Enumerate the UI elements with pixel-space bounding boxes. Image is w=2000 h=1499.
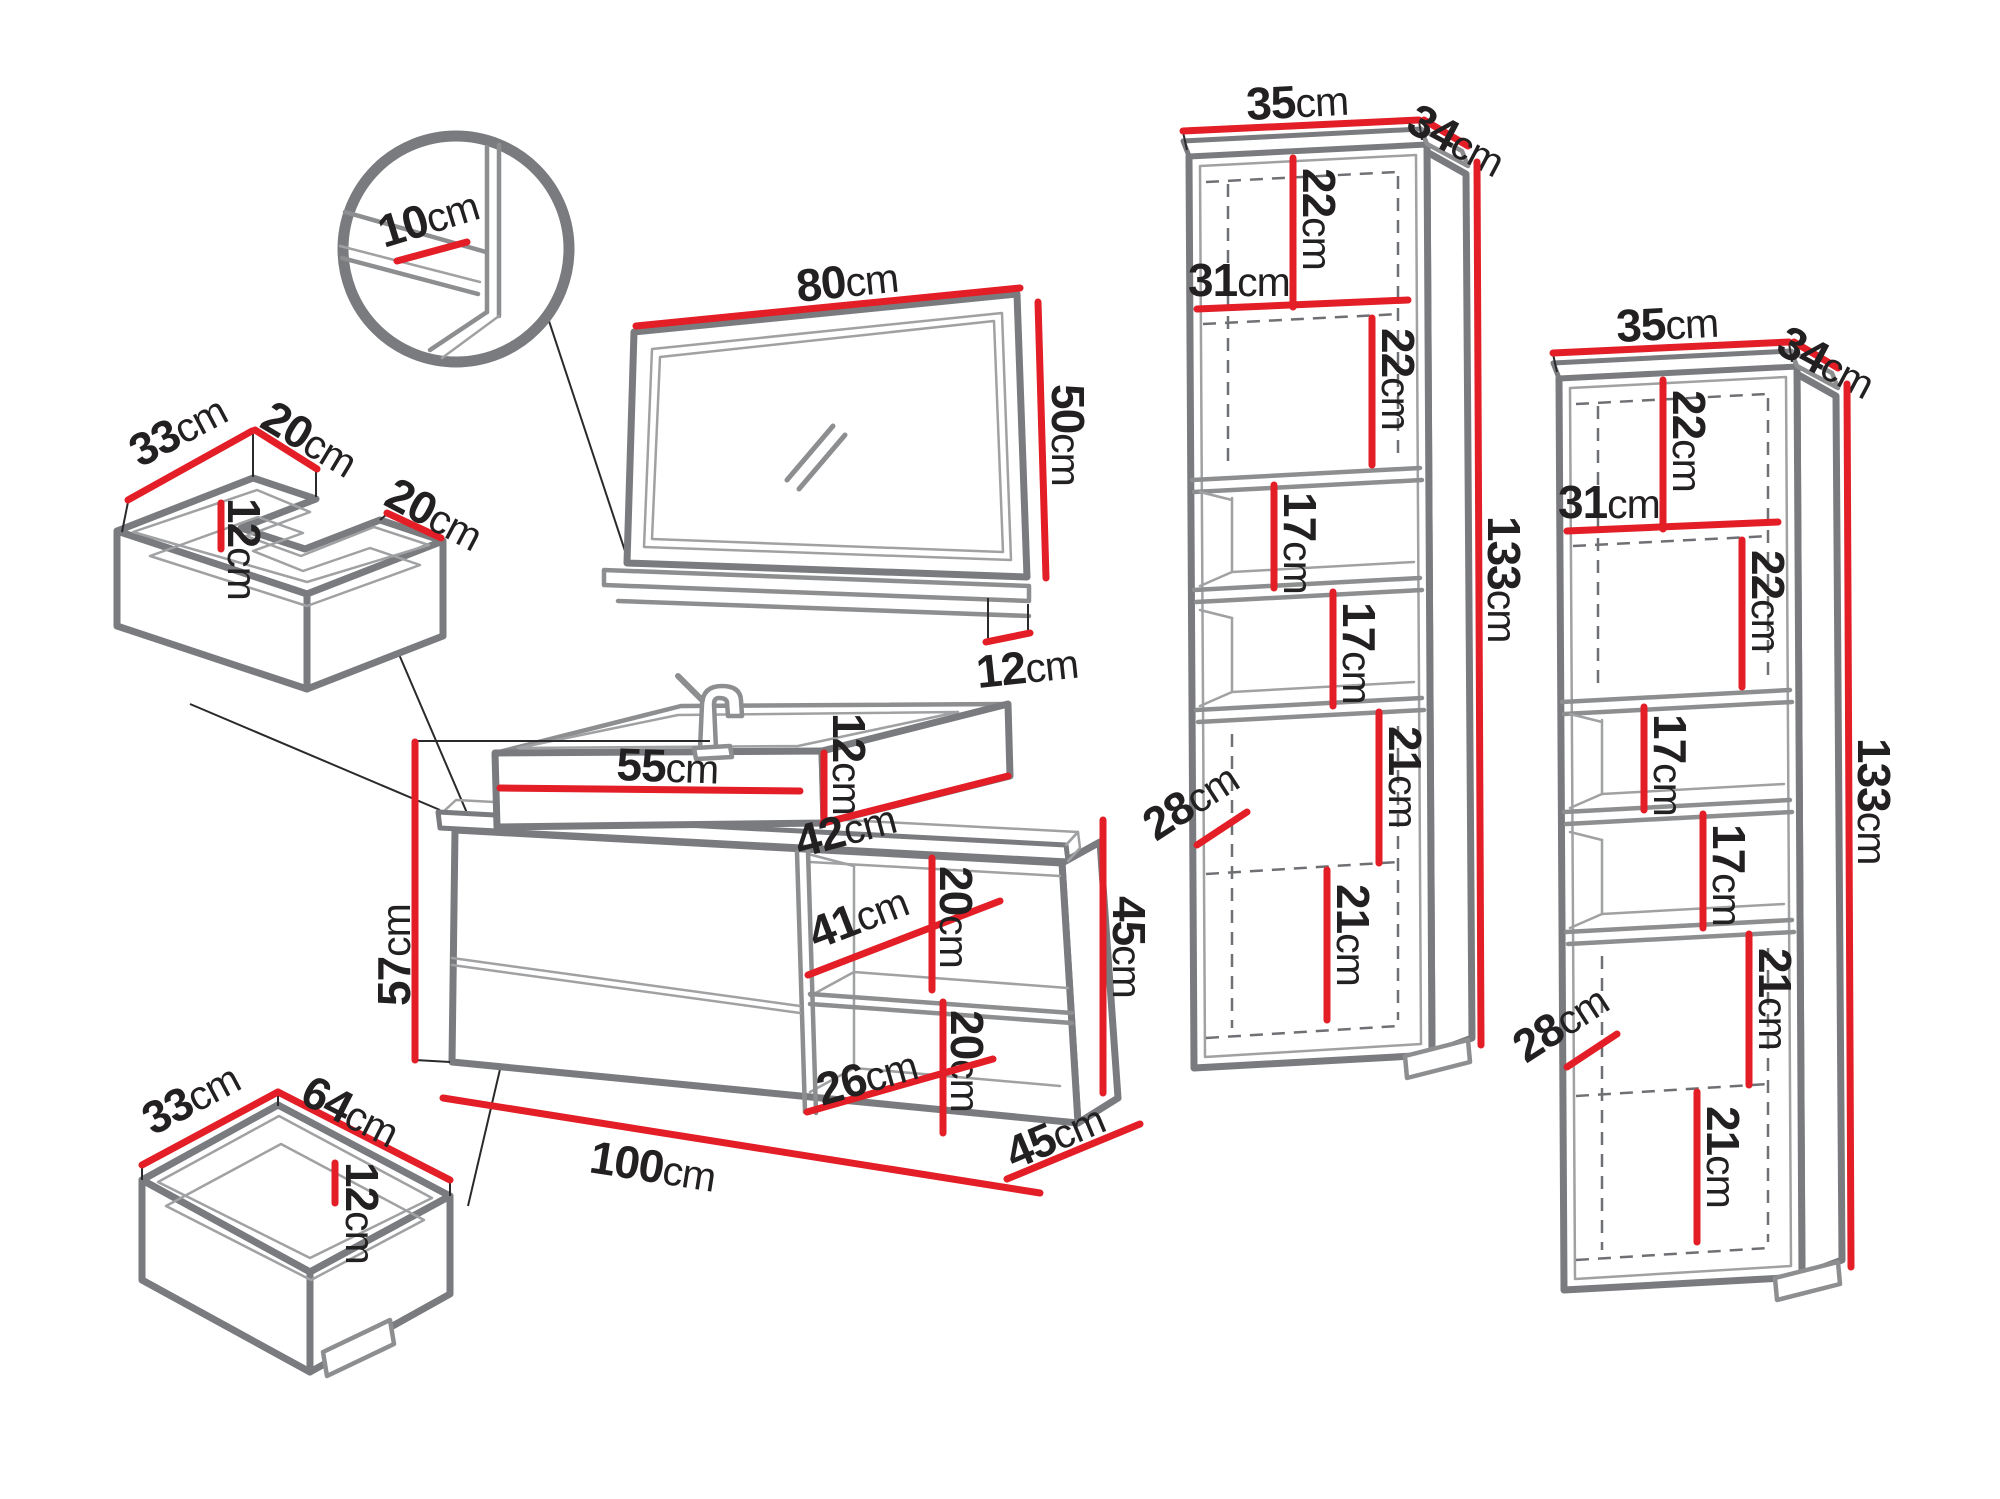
mirror-shelf-underside	[618, 601, 1029, 616]
diagram-canvas: 10cm 80cm 50cm 12cm 33cm 20cm 20cm	[0, 0, 2000, 1499]
dim-label-bottomdrawer-12: 12cm	[336, 1162, 388, 1264]
leader-bottomdrawer-to-vanity	[468, 1048, 505, 1206]
dim-label-cab1-22b: 22cm	[1372, 328, 1424, 430]
dim-label-topdrawer-33: 33cm	[120, 383, 234, 477]
dim-label-topdrawer-12: 12cm	[218, 498, 270, 600]
mirror: 80cm 50cm 12cm	[604, 250, 1094, 698]
dim-label-cab2-17b: 17cm	[1703, 824, 1755, 926]
dim-label-cab2-35: 35cm	[1615, 295, 1719, 352]
dim-label-cab1-31: 31cm	[1188, 254, 1290, 306]
dim-label-cab2-22a: 22cm	[1663, 390, 1715, 492]
detail-circle: 10cm	[340, 136, 569, 362]
faucet-lever	[678, 676, 702, 700]
dim-line-mirror-12	[986, 633, 1030, 642]
dim-label-cab1-133: 133cm	[1478, 516, 1530, 642]
dim-label-vanity-45h: 45cm	[1103, 896, 1155, 998]
dim-label-cab2-22b: 22cm	[1742, 550, 1794, 652]
dim-label-mirror-50: 50cm	[1042, 384, 1094, 486]
dim-label-vanity-20a: 20cm	[930, 866, 982, 968]
leader-topdrawer-to-counter	[190, 704, 440, 810]
dim-label-topdrawer-20a: 20cm	[253, 390, 367, 487]
dim-label-cab1-21b: 21cm	[1327, 884, 1379, 986]
dim-label-vanity-55: 55cm	[616, 738, 720, 794]
tall-cabinet-1: 35cm 34cm 22cm 31cm 22cm 17cm 17cm 21cm …	[1133, 73, 1530, 1078]
dim-label-cab2-21b: 21cm	[1697, 1106, 1749, 1208]
leader-circle-to-mirror	[548, 318, 627, 557]
dim-label-cab2-133: 133cm	[1848, 738, 1900, 864]
dim-label-cab2-21a: 21cm	[1749, 948, 1801, 1050]
dim-label-vanity-12: 12cm	[823, 713, 875, 815]
tall-cabinet-2: 35cm 34cm 22cm 31cm 22cm 17cm 17cm 21cm …	[1503, 295, 1900, 1300]
dim-label-vanity-57: 57cm	[368, 904, 420, 1006]
vanity-cabinet: 57cm 55cm 12cm 42cm 41cm 20cm 20cm 26cm …	[368, 676, 1155, 1202]
dim-label-cab1-17a: 17cm	[1274, 492, 1326, 594]
dim-label-cab2-31: 31cm	[1558, 476, 1660, 528]
dim-label-mirror-12: 12cm	[974, 636, 1081, 698]
bottom-drawer: 33cm 64cm 12cm	[133, 1051, 450, 1376]
magnifier-circle-icon	[343, 136, 569, 362]
dim-label-cab1-35: 35cm	[1245, 73, 1349, 130]
top-drawer-u-shaped: 33cm 20cm 20cm 12cm	[117, 383, 492, 689]
dim-label-cab1-21a: 21cm	[1379, 726, 1431, 828]
dim-label-cab2-17a: 17cm	[1644, 714, 1696, 816]
dim-label-cab1-17b: 17cm	[1333, 602, 1385, 704]
furniture-dimension-diagram: 10cm 80cm 50cm 12cm 33cm 20cm 20cm	[0, 0, 2000, 1499]
dim-extension	[415, 1060, 450, 1062]
dim-label-cab1-22a: 22cm	[1293, 168, 1345, 270]
